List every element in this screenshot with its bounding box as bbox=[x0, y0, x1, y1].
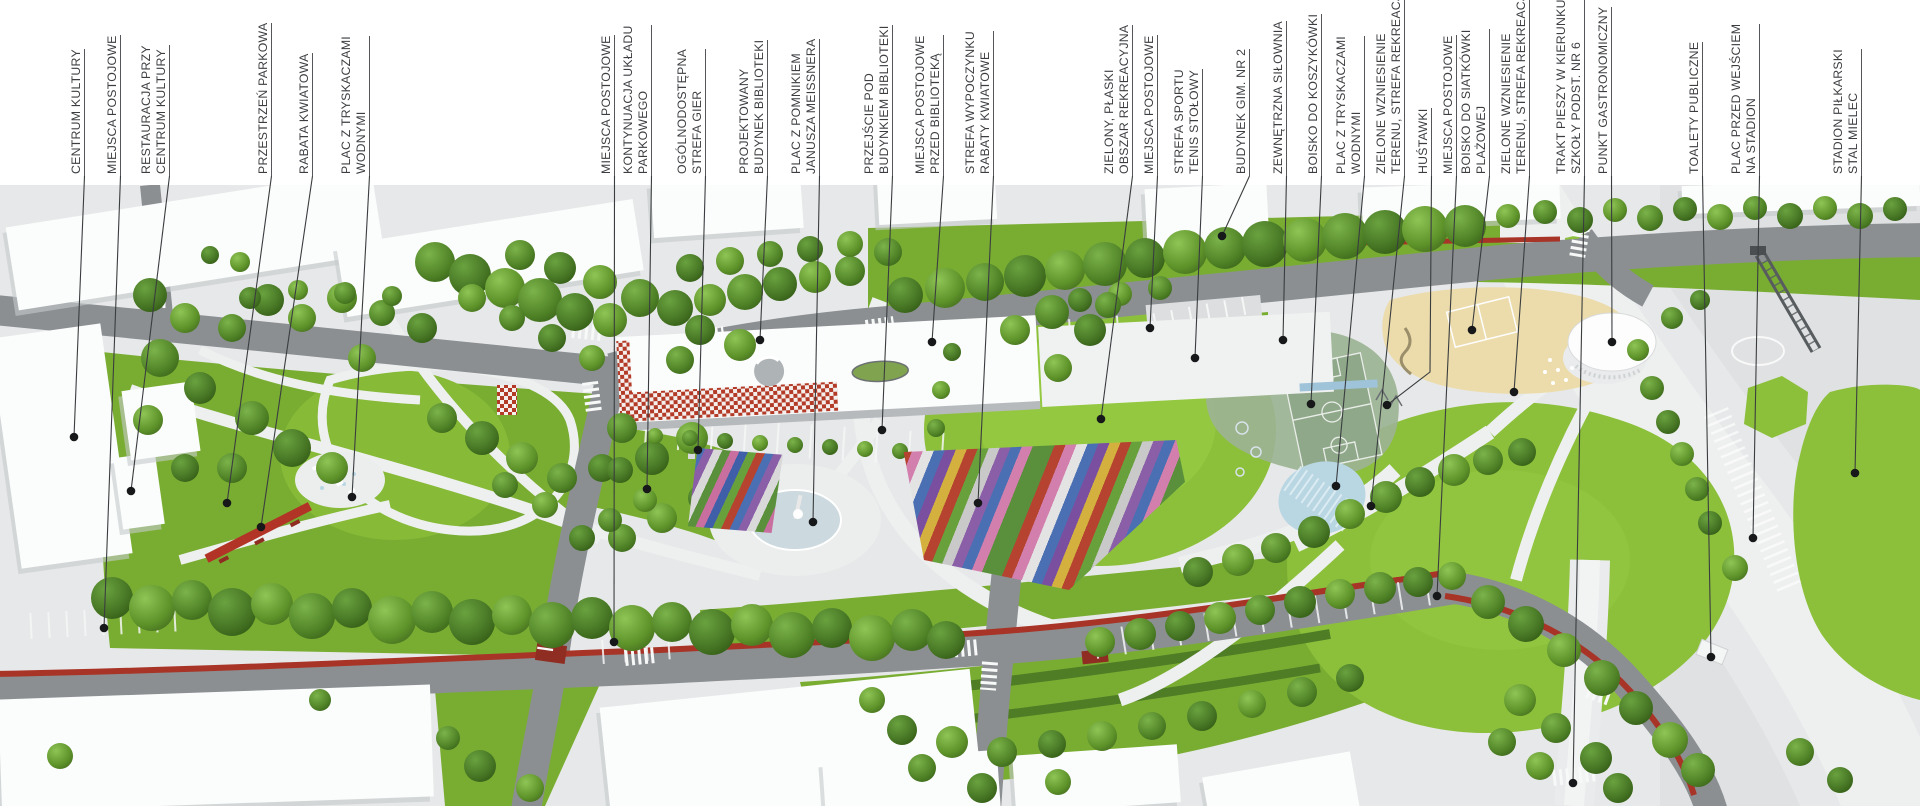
callout-label-trakt-pieszy: TRAKT PIESZY W KIERUNKU SZKOŁY PODST. NR… bbox=[1554, 0, 1585, 176]
callout-label-strefa-wypoczynku: STREFA WYPOCZYNKU RABATY KWIATOWE bbox=[963, 31, 994, 176]
callout-label-budynek-gim-nr-2: BUDYNEK GIM. NR 2 bbox=[1234, 49, 1250, 176]
callout-label-stadion: STADION PIŁKARSKI STAL MIELEC bbox=[1831, 49, 1862, 176]
callout-label-centrum-kultury: CENTRUM KULTURY bbox=[69, 49, 85, 176]
masterplan: CENTRUM KULTURYMIEJSCA POSTOJOWERESTAURA… bbox=[0, 0, 1920, 806]
callout-label-hustawki: HUŚTAWKI bbox=[1416, 108, 1432, 176]
callout-label-miejsca-postojowe-1: MIEJSCA POSTOJOWE bbox=[105, 35, 121, 176]
callout-label-kontynuacja-ukladu-parkowego: KONTYNUACJA UKŁADU PARKOWEGO bbox=[621, 25, 652, 176]
red-lattice-pavilion bbox=[497, 385, 517, 415]
callout-label-toalety-publiczne: TOALETY PUBLICZNE bbox=[1687, 42, 1703, 176]
callout-label-plac-przed-stadionem: PLAC PRZED WEJŚCIEM NA STADION bbox=[1729, 24, 1760, 176]
callout-label-rabata-kwiatowa: RABATA KWIATOWA bbox=[297, 53, 313, 176]
callout-label-przestrzen-parkowa: PRZESTRZEŃ PARKOWA bbox=[256, 23, 272, 176]
callout-label-przejscie-pod-biblioteka: PRZEJŚCIE POD BUDYNKIEM BIBLIOTEKI bbox=[862, 26, 893, 177]
callout-label-zewnetrzna-silownia: ZEWNĘTRZNA SIŁOWNIA bbox=[1271, 21, 1287, 176]
callout-label-miejsca-postojowe-2: MIEJSCA POSTOJOWE bbox=[599, 35, 615, 176]
callout-label-miejsca-postojowe-3: MIEJSCA POSTOJOWE PRZED BIBLIOTEKĄ bbox=[913, 35, 944, 176]
callout-label-obszar-rekreacyjny: ZIELONY, PŁASKI OBSZAR REKREACYJNA bbox=[1102, 25, 1133, 176]
callout-label-plac-z-tryskaczami-1: PLAC Z TRYSKACZAMI WODNYMI bbox=[339, 36, 370, 176]
callout-label-zielone-wzniesienie-1: ZIELONE WZNIESIENIE TERENU, STREFA REKRE… bbox=[1374, 0, 1405, 176]
callout-label-plac-z-tryskaczami-2: PLAC Z TRYSKACZAMI WODNYMI bbox=[1334, 36, 1365, 176]
callout-label-miejsca-postojowe-5: MIEJSCA POSTOJOWE bbox=[1441, 35, 1457, 176]
callout-label-siatkowka-plazowa: BOISKO DO SIATKÓWKI PLAŻOWEJ bbox=[1459, 29, 1490, 176]
callout-label-punkt-gastronomiczny: PUNKT GASTRONOMICZNY bbox=[1596, 7, 1612, 176]
callout-label-restauracja-przy-ck: RESTAURACJA PRZY CENTRUM KULTURY bbox=[139, 45, 170, 176]
callout-label-tenis-stolowy: STREFA SPORTU TENIS STOŁOWY bbox=[1172, 69, 1203, 176]
callout-label-zielone-wzniesienie-2: ZIELONE WZNIESIENIE TERENU, STREFA REKRE… bbox=[1499, 0, 1530, 176]
flower-bed-small bbox=[688, 448, 783, 533]
callout-label-boisko-do-koszykowki: BOISKO DO KOSZYKÓWKI bbox=[1306, 14, 1322, 176]
callout-label-miejsca-postojowe-4: MIEJSCA POSTOJOWE bbox=[1142, 35, 1158, 176]
callout-label-plac-meissnera: PLAC Z POMNIKIEM JANUSZA MEISSNERA bbox=[789, 39, 820, 176]
callout-label-budynek-biblioteki: PROJEKTOWANY BUDYNEK BIBLIOTEKI bbox=[737, 40, 768, 176]
callout-label-strefa-gier: OGÓLNODOSTĘPNA STREFA GIER bbox=[675, 49, 706, 176]
label-band: CENTRUM KULTURYMIEJSCA POSTOJOWERESTAURA… bbox=[0, 0, 1920, 185]
